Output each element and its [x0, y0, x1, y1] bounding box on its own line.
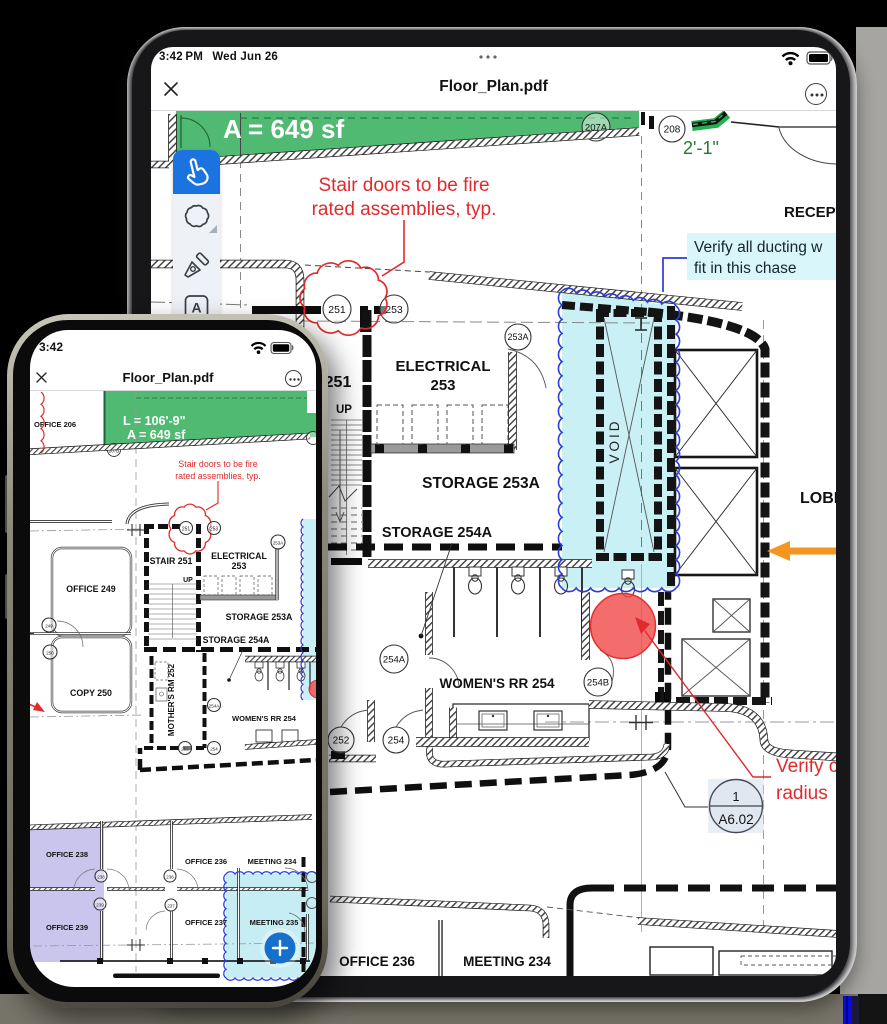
svg-text:A6.02: A6.02: [718, 812, 753, 827]
svg-text:radius: radius: [776, 783, 828, 804]
svg-text:STORAGE 254A: STORAGE 254A: [382, 525, 493, 541]
svg-text:252: 252: [181, 747, 189, 752]
svg-text:STORAGE 254A: STORAGE 254A: [203, 635, 270, 645]
svg-text:fit in this chase: fit in this chase: [694, 260, 797, 277]
svg-text:ELECTRICAL: ELECTRICAL: [211, 551, 267, 561]
svg-text:238: 238: [97, 875, 105, 880]
svg-text:A = 649 sf: A = 649 sf: [127, 428, 186, 442]
svg-text:STORAGE 253A: STORAGE 253A: [422, 475, 540, 492]
svg-text:254B: 254B: [587, 677, 609, 688]
svg-text:rated assemblies, typ.: rated assemblies, typ.: [312, 199, 497, 220]
svg-text:OFFICE 239: OFFICE 239: [46, 923, 88, 932]
svg-text:rated assemblies, typ.: rated assemblies, typ.: [175, 471, 261, 481]
svg-text:236: 236: [166, 875, 174, 880]
svg-text:252: 252: [333, 736, 350, 747]
svg-text:251: 251: [325, 374, 352, 391]
svg-text:2'-1": 2'-1": [683, 138, 719, 158]
svg-text:254: 254: [388, 736, 405, 747]
svg-text:249: 249: [45, 624, 53, 629]
svg-text:VOID: VOID: [607, 418, 622, 463]
svg-text:Verify all ducting w: Verify all ducting w: [694, 239, 823, 256]
svg-text:254: 254: [210, 747, 218, 752]
svg-text:STAIR 251: STAIR 251: [150, 556, 193, 566]
svg-text:A = 649 sf: A = 649 sf: [223, 114, 345, 144]
svg-text:RECEPTION: RECEPTION: [784, 204, 836, 221]
svg-text:Stair doors to be fire: Stair doors to be fire: [318, 175, 489, 196]
svg-text:239: 239: [96, 903, 104, 908]
svg-text:253: 253: [430, 377, 455, 394]
svg-text:UP: UP: [183, 577, 193, 584]
svg-text:251: 251: [182, 527, 191, 533]
svg-text:L = 106'-9": L = 106'-9": [123, 414, 186, 428]
svg-text:WOMEN'S RR 254: WOMEN'S RR 254: [440, 676, 555, 691]
svg-text:253: 253: [210, 527, 219, 533]
svg-text:OFFICE 236: OFFICE 236: [185, 857, 227, 866]
svg-text:OFFICE 206: OFFICE 206: [34, 420, 76, 429]
svg-text:253A: 253A: [273, 541, 284, 546]
svg-text:ELECTRICAL: ELECTRICAL: [396, 358, 491, 375]
svg-text:MEETING 234: MEETING 234: [463, 954, 551, 969]
svg-text:COPY 250: COPY 250: [70, 688, 112, 698]
svg-text:MEETING 234: MEETING 234: [248, 857, 298, 866]
svg-text:WOMEN'S RR 254: WOMEN'S RR 254: [232, 714, 297, 723]
svg-text:UP: UP: [336, 404, 352, 416]
svg-text:237: 237: [167, 904, 175, 909]
svg-text:251: 251: [328, 304, 346, 316]
svg-text:254A: 254A: [383, 654, 406, 665]
svg-text:MEETING 235: MEETING 235: [250, 918, 299, 927]
svg-text:253: 253: [385, 304, 403, 316]
svg-text:OFFICE 237: OFFICE 237: [185, 918, 227, 927]
svg-text:1: 1: [733, 790, 740, 804]
svg-text:253A: 253A: [507, 332, 528, 342]
svg-text:Verify cl: Verify cl: [776, 756, 836, 777]
svg-text:LOBBY: LOBBY: [800, 490, 836, 507]
svg-text:Stair doors to be fire: Stair doors to be fire: [178, 459, 257, 469]
svg-text:253: 253: [232, 561, 247, 571]
svg-text:250: 250: [46, 651, 54, 656]
svg-text:OFFICE 238: OFFICE 238: [46, 850, 88, 859]
svg-text:STORAGE 253A: STORAGE 253A: [226, 612, 293, 622]
svg-text:MOTHER'S RM 252: MOTHER'S RM 252: [167, 663, 176, 736]
svg-text:254A: 254A: [209, 704, 220, 709]
svg-text:OFFICE 249: OFFICE 249: [66, 584, 115, 594]
svg-text:OFFICE 236: OFFICE 236: [339, 954, 415, 969]
svg-text:208: 208: [664, 125, 681, 136]
